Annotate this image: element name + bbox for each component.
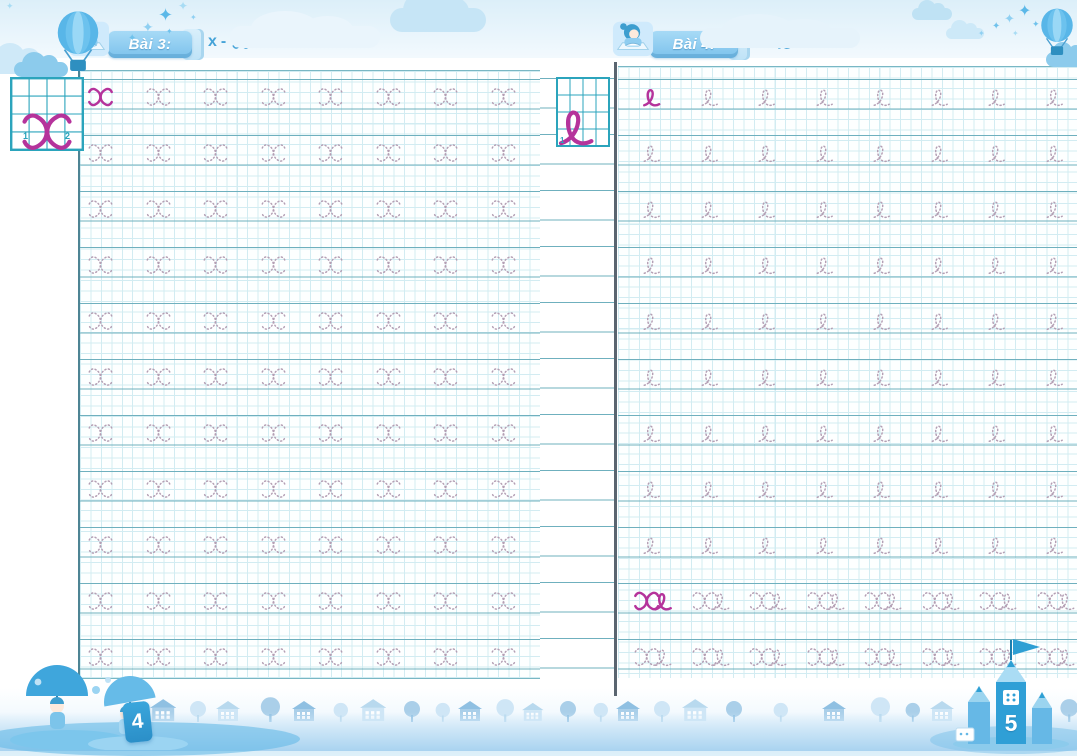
left-page-margin (540, 70, 615, 677)
sparkle-star-icon: ✦ (190, 14, 197, 22)
sparkle-star-icon: ✦ (166, 28, 173, 36)
sparkle-star-icon: ✦ (992, 22, 1000, 32)
sparkle-star-icon: ✦ (978, 30, 985, 38)
stroke-number: 2 (65, 131, 70, 141)
girl-reading-icon (612, 18, 654, 58)
kids-with-umbrellas-illustration (8, 662, 198, 750)
page-number-left: 4 (122, 701, 153, 744)
sparkle-star-icon: ✦ (128, 34, 136, 44)
page-number-text: 5 (1005, 710, 1018, 737)
sparkle-star-icon: ✦ (158, 6, 173, 24)
page-number-right: 5 (999, 708, 1023, 738)
model-box-e: 1 (556, 77, 610, 153)
stroke-number: 1 (560, 136, 565, 145)
rule-lines (540, 78, 615, 677)
practice-grid-right (618, 66, 1077, 678)
cloud-icon (912, 8, 952, 20)
model-box-x: 1 2 (10, 77, 84, 157)
sparkle-star-icon: ✦ (178, 0, 188, 12)
page-divider (614, 62, 617, 696)
rule-lines (618, 79, 1077, 678)
rule-lines (80, 79, 540, 678)
print-letter: x (208, 33, 217, 51)
cloud-icon (700, 28, 860, 48)
sparkle-star-icon: ✦ (142, 20, 154, 34)
lesson-banner: Bài 3: (108, 31, 192, 58)
sparkle-star-icon: ✦ (1004, 12, 1015, 25)
flag-icon (1013, 639, 1040, 655)
hot-air-balloon-icon (40, 8, 116, 80)
page-number-text: 4 (130, 709, 144, 734)
practice-grid-left (78, 70, 540, 679)
cloud-icon (390, 8, 486, 32)
cloud-icon (230, 26, 380, 48)
stroke-number: 1 (23, 131, 28, 141)
hot-air-balloon-icon (1028, 6, 1077, 62)
sparkle-star-icon: ✦ (1012, 30, 1019, 38)
sparkle-star-icon: ✦ (6, 2, 14, 11)
pair-separator: - (221, 33, 226, 51)
